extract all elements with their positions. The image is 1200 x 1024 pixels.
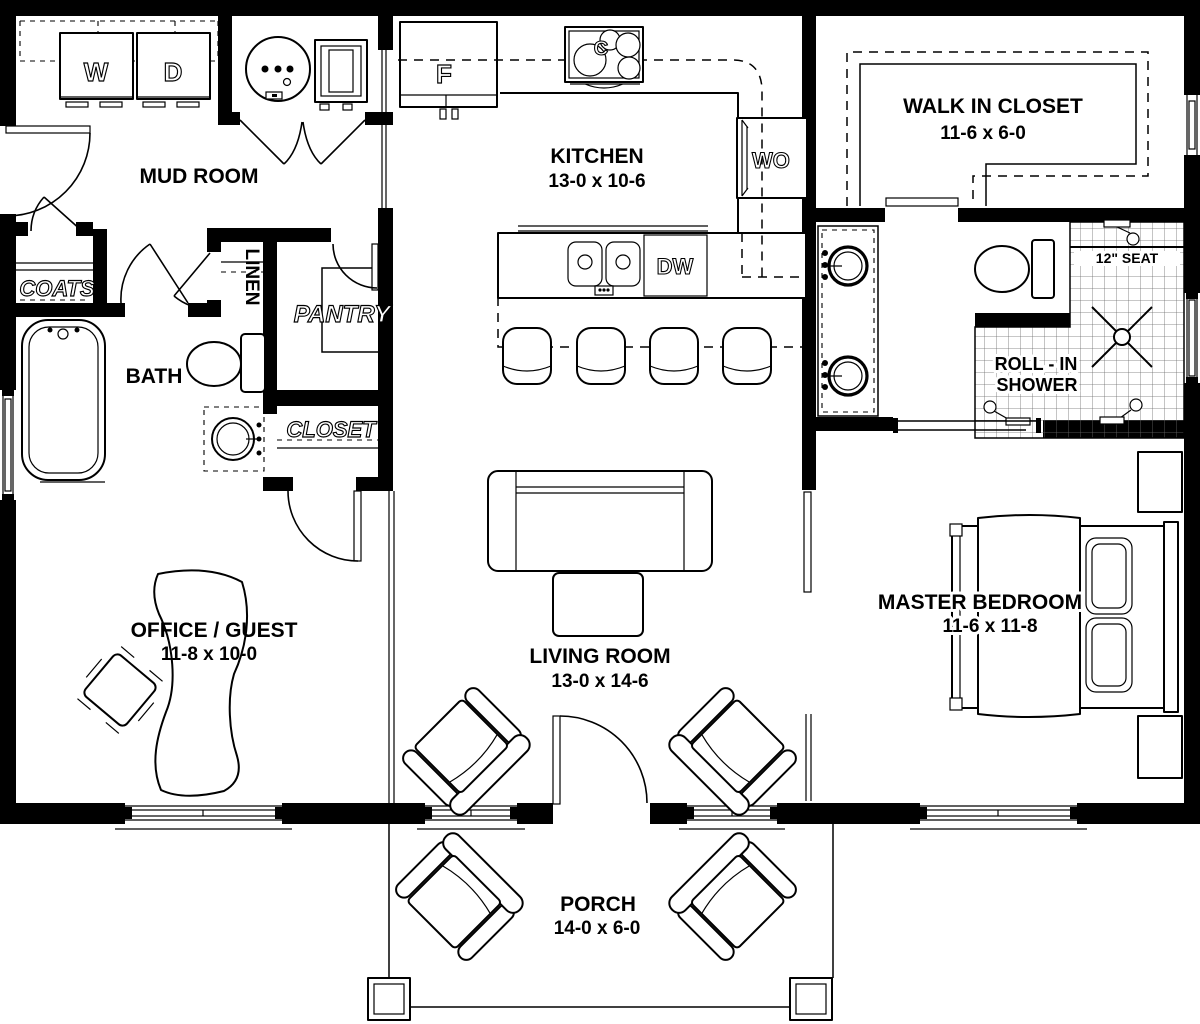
kitchen-island bbox=[498, 226, 806, 298]
porch-post-right bbox=[790, 978, 832, 1020]
office-chair bbox=[72, 642, 168, 738]
mud-room-label: MUD ROOM bbox=[140, 165, 259, 188]
entry-door-opening bbox=[0, 126, 16, 214]
floor-plan: W D MUD ROOM COATS bbox=[0, 0, 1200, 1024]
sofa bbox=[488, 471, 712, 571]
room-porch: PORCH 14-0 x 6-0 bbox=[368, 824, 833, 1020]
cooktop-label: C bbox=[594, 38, 608, 60]
kitchen-dims: 13-0 x 10-6 bbox=[548, 171, 645, 192]
porch-chair-left bbox=[393, 830, 527, 964]
bathtub bbox=[22, 320, 105, 482]
bath-toilet bbox=[187, 334, 265, 392]
nightstand-top bbox=[1138, 452, 1182, 512]
linen-label: LINEN bbox=[241, 249, 262, 306]
utility-closet-doors bbox=[240, 120, 365, 164]
cooktop: C bbox=[565, 27, 643, 88]
living-chair-left bbox=[400, 685, 534, 819]
room-kitchen: C F WO DW KITCHEN 13-0 x 10-6 bbox=[398, 22, 807, 384]
mudroom-kitchen-thin-wall bbox=[382, 50, 386, 208]
pantry: PANTRY bbox=[294, 244, 392, 352]
linen-door bbox=[174, 253, 211, 309]
walk-in-closet-dims: 11-6 x 6-0 bbox=[940, 123, 1026, 144]
room-office: OFFICE / GUEST 11-8 x 10-0 bbox=[72, 570, 297, 795]
nightstand-bottom bbox=[1138, 716, 1182, 778]
coats-label: COATS bbox=[19, 276, 95, 301]
porch-dims: 14-0 x 6-0 bbox=[554, 918, 641, 939]
dryer-label: D bbox=[164, 57, 183, 87]
living-room-label: LIVING ROOM bbox=[529, 645, 670, 668]
porch-label: PORCH bbox=[560, 893, 636, 916]
bath-label: BATH bbox=[126, 365, 183, 388]
bedroom-pocket-door bbox=[804, 492, 811, 592]
floor-plan-drawing: W D MUD ROOM COATS bbox=[0, 0, 1200, 1024]
office-label: OFFICE / GUEST bbox=[131, 619, 298, 642]
porch-post-left bbox=[368, 978, 410, 1020]
pantry-door bbox=[333, 244, 378, 290]
furnace bbox=[315, 40, 367, 110]
bedroom-window bbox=[910, 803, 1087, 829]
coats-door bbox=[31, 197, 82, 231]
washer-label: W bbox=[84, 57, 109, 87]
linen-closet: LINEN bbox=[174, 249, 263, 310]
living-chair-right bbox=[666, 685, 800, 819]
entry-door bbox=[6, 126, 90, 216]
office-window bbox=[115, 803, 292, 829]
shower-seat-label: 12" SEAT bbox=[1096, 250, 1159, 266]
kitchen-label: KITCHEN bbox=[550, 145, 643, 168]
bedroom-pocket-wall bbox=[806, 714, 811, 801]
coffee-table bbox=[553, 573, 643, 636]
living-room-dims: 13-0 x 14-6 bbox=[551, 671, 648, 692]
office-desk bbox=[154, 570, 247, 795]
double-vanity bbox=[818, 226, 878, 416]
closet-window bbox=[1184, 95, 1200, 155]
bar-stools bbox=[503, 328, 771, 384]
front-door-jamb-right bbox=[650, 803, 655, 824]
shower-drain bbox=[1114, 329, 1130, 345]
shower-label-1: ROLL - IN bbox=[995, 354, 1078, 374]
closet-label: CLOSET bbox=[286, 417, 377, 442]
shower-label-2: SHOWER bbox=[997, 375, 1078, 395]
bath-window bbox=[0, 390, 16, 500]
walk-in-closet-label: WALK IN CLOSET bbox=[903, 95, 1083, 118]
office-living-thin-wall bbox=[389, 491, 394, 803]
headboard bbox=[1164, 522, 1178, 712]
front-door-jamb-left bbox=[548, 803, 553, 824]
room-mud-room: W D MUD ROOM bbox=[6, 21, 367, 216]
bath-door bbox=[121, 244, 188, 303]
room-walk-in-closet: WALK IN CLOSET 11-6 x 6-0 bbox=[847, 52, 1148, 206]
shower-window bbox=[1184, 293, 1200, 383]
wall-oven-label: WO bbox=[752, 148, 790, 173]
pantry-label: PANTRY bbox=[294, 301, 392, 328]
water-heater bbox=[246, 37, 310, 101]
front-door bbox=[553, 716, 647, 804]
dishwasher-label: DW bbox=[657, 254, 694, 279]
master-bedroom-label: MASTER BEDROOM bbox=[878, 591, 1082, 614]
master-bedroom-dims: 11-6 x 11-8 bbox=[942, 616, 1037, 637]
fridge-label: F bbox=[436, 59, 452, 89]
porch-chair-right bbox=[666, 830, 800, 964]
closet-pocket-door bbox=[886, 198, 958, 206]
master-toilet bbox=[975, 240, 1054, 298]
office-dims: 11-8 x 10-0 bbox=[161, 644, 257, 665]
room-master-bedroom: MASTER BEDROOM 11-6 x 11-8 bbox=[878, 452, 1182, 778]
room-living: LIVING ROOM 13-0 x 14-6 bbox=[400, 471, 799, 818]
bath-sink bbox=[204, 407, 264, 471]
office-door bbox=[288, 491, 361, 561]
